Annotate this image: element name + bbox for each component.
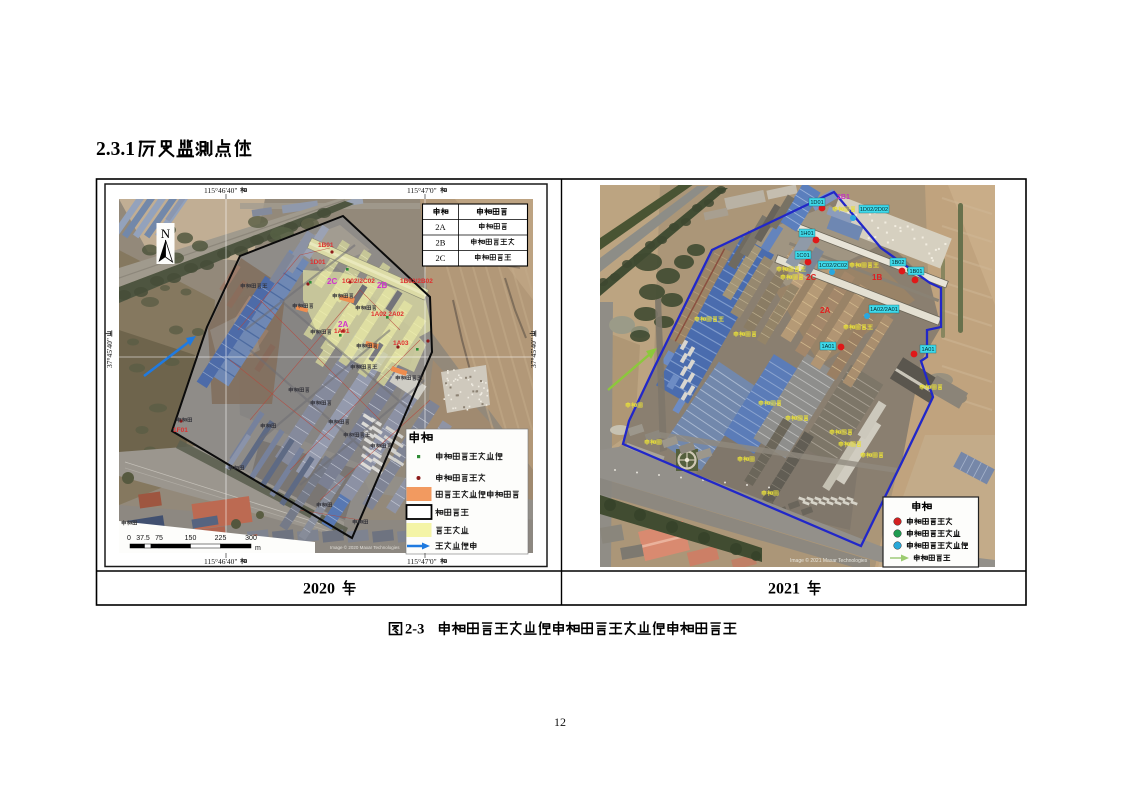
svg-text:1A01: 1A01	[821, 344, 834, 350]
svg-text:115°46'40": 115°46'40"	[204, 186, 237, 195]
svg-text:1D02/2D02: 1D02/2D02	[860, 207, 888, 213]
svg-text:2B: 2B	[436, 238, 446, 248]
svg-text:2A: 2A	[820, 306, 830, 315]
svg-text:2C: 2C	[327, 277, 337, 286]
svg-text:2-3: 2-3	[405, 622, 424, 638]
svg-text:115°47'0": 115°47'0"	[407, 557, 437, 566]
svg-text:2B1: 2B1	[837, 194, 850, 201]
svg-text:300: 300	[245, 535, 257, 542]
svg-text:m: m	[255, 545, 261, 552]
svg-text:1A01: 1A01	[921, 347, 934, 353]
svg-text:N: N	[161, 226, 171, 241]
svg-text:1F01: 1F01	[173, 427, 188, 434]
svg-text:37°45'40": 37°45'40"	[105, 338, 114, 368]
svg-text:1D01: 1D01	[810, 200, 823, 206]
svg-text:1A02/2A01: 1A02/2A01	[870, 307, 898, 313]
svg-text:1A03: 1A03	[393, 340, 409, 347]
svg-text:2C: 2C	[806, 273, 816, 282]
svg-text:1A02 2A02: 1A02 2A02	[371, 311, 404, 318]
svg-text:115°47'0": 115°47'0"	[407, 186, 437, 195]
svg-text:1D01: 1D01	[310, 259, 326, 266]
svg-text:1H01: 1H01	[800, 231, 813, 237]
svg-text:2A: 2A	[338, 320, 348, 329]
svg-text:1C02/2C02: 1C02/2C02	[342, 278, 375, 285]
svg-text:37°45'40": 37°45'40"	[529, 338, 538, 368]
svg-text:Image © 2020 Maxar Technologie: Image © 2020 Maxar Technologies	[330, 544, 400, 550]
svg-text:Image © 2021 Maxar Technologie: Image © 2021 Maxar Technologies	[790, 557, 868, 564]
svg-text:115°46'40": 115°46'40"	[204, 557, 237, 566]
svg-text:2020: 2020	[303, 581, 335, 598]
svg-text:2C: 2C	[436, 253, 446, 263]
svg-text:2A: 2A	[435, 222, 446, 232]
svg-text:1B: 1B	[872, 273, 882, 282]
svg-text:12: 12	[554, 715, 566, 729]
svg-text:75: 75	[155, 535, 163, 542]
svg-text:225: 225	[215, 535, 227, 542]
svg-text:1A01: 1A01	[334, 328, 350, 335]
svg-text:1B02: 1B02	[891, 260, 904, 266]
svg-text:1C02/2C02: 1C02/2C02	[819, 263, 847, 269]
svg-text:1B02/2B02: 1B02/2B02	[400, 278, 433, 285]
svg-text:2021: 2021	[768, 581, 800, 598]
svg-text:1C01: 1C01	[796, 253, 809, 259]
svg-text:37.5: 37.5	[136, 535, 150, 542]
svg-text:2B: 2B	[377, 281, 387, 290]
svg-text:0: 0	[127, 535, 131, 542]
svg-text:2.3.1: 2.3.1	[96, 139, 135, 160]
svg-text:150: 150	[185, 535, 197, 542]
svg-text:1B01: 1B01	[909, 269, 922, 275]
svg-text:1B01: 1B01	[318, 242, 334, 249]
